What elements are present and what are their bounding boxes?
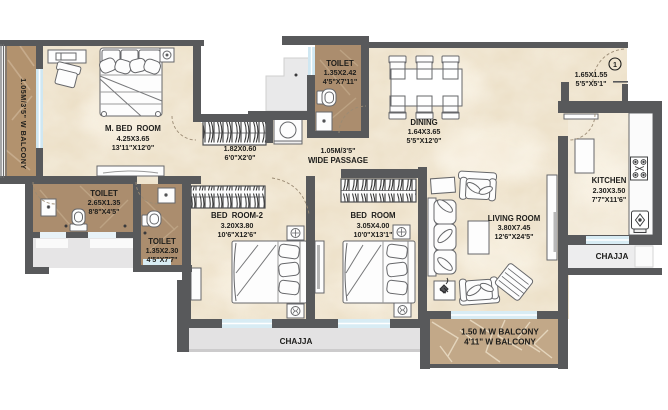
svg-text:TOILET: TOILET: [90, 189, 118, 198]
svg-text:M. BED ROOM: M. BED ROOM: [105, 124, 161, 133]
svg-text:5'5"X5'1": 5'5"X5'1": [575, 79, 606, 88]
svg-text:1.35X2.42: 1.35X2.42: [324, 68, 357, 77]
svg-text:12'6"X24'5": 12'6"X24'5": [494, 232, 533, 241]
svg-text:TOILET: TOILET: [326, 59, 354, 68]
svg-text:4'11" W BALCONY: 4'11" W BALCONY: [464, 338, 536, 347]
svg-text:4.25X3.65: 4.25X3.65: [117, 134, 150, 143]
svg-text:7'7"X11'6": 7'7"X11'6": [592, 195, 627, 204]
svg-text:CHAJJA: CHAJJA: [280, 337, 313, 346]
svg-text:8'8"X4'5": 8'8"X4'5": [88, 207, 119, 216]
svg-text:1: 1: [613, 60, 617, 69]
svg-text:1.05M/3'5" W BALCONY: 1.05M/3'5" W BALCONY: [19, 78, 28, 169]
svg-text:3.05X4.00: 3.05X4.00: [357, 221, 390, 230]
svg-text:KITCHEN: KITCHEN: [592, 176, 627, 185]
svg-text:1.05M/3'5": 1.05M/3'5": [320, 146, 355, 155]
svg-text:2.65X1.35: 2.65X1.35: [88, 198, 121, 207]
svg-text:TOILET: TOILET: [148, 237, 176, 246]
svg-text:DINING: DINING: [410, 118, 437, 127]
svg-text:3.20X3.80: 3.20X3.80: [221, 221, 254, 230]
svg-text:CHAJJA: CHAJJA: [596, 252, 629, 261]
svg-text:4'5"X7'11": 4'5"X7'11": [323, 77, 358, 86]
svg-text:1.50 M W BALCONY: 1.50 M W BALCONY: [461, 328, 539, 337]
svg-text:1.35X2.30: 1.35X2.30: [146, 246, 179, 255]
svg-text:13'11"X12'0": 13'11"X12'0": [112, 143, 155, 152]
svg-text:4'5"X7'7": 4'5"X7'7": [146, 255, 177, 264]
svg-text:6'0"X2'0": 6'0"X2'0": [224, 153, 255, 162]
svg-text:BED ROOM-2: BED ROOM-2: [211, 211, 264, 220]
svg-text:1.64X3.65: 1.64X3.65: [408, 127, 441, 136]
svg-text:WIDE PASSAGE: WIDE PASSAGE: [308, 156, 368, 165]
svg-text:BED ROOM: BED ROOM: [350, 211, 395, 220]
svg-text:1.65X1.55: 1.65X1.55: [575, 70, 608, 79]
svg-text:LIVING ROOM: LIVING ROOM: [488, 214, 540, 223]
svg-text:10'6"X12'6": 10'6"X12'6": [217, 230, 256, 239]
svg-text:1.82X0.60: 1.82X0.60: [224, 144, 257, 153]
svg-text:2.30X3.50: 2.30X3.50: [593, 186, 626, 195]
svg-text:3.80X7.45: 3.80X7.45: [498, 223, 531, 232]
svg-text:10'0"X13'1": 10'0"X13'1": [353, 230, 392, 239]
svg-text:5'5"X12'0": 5'5"X12'0": [406, 136, 441, 145]
